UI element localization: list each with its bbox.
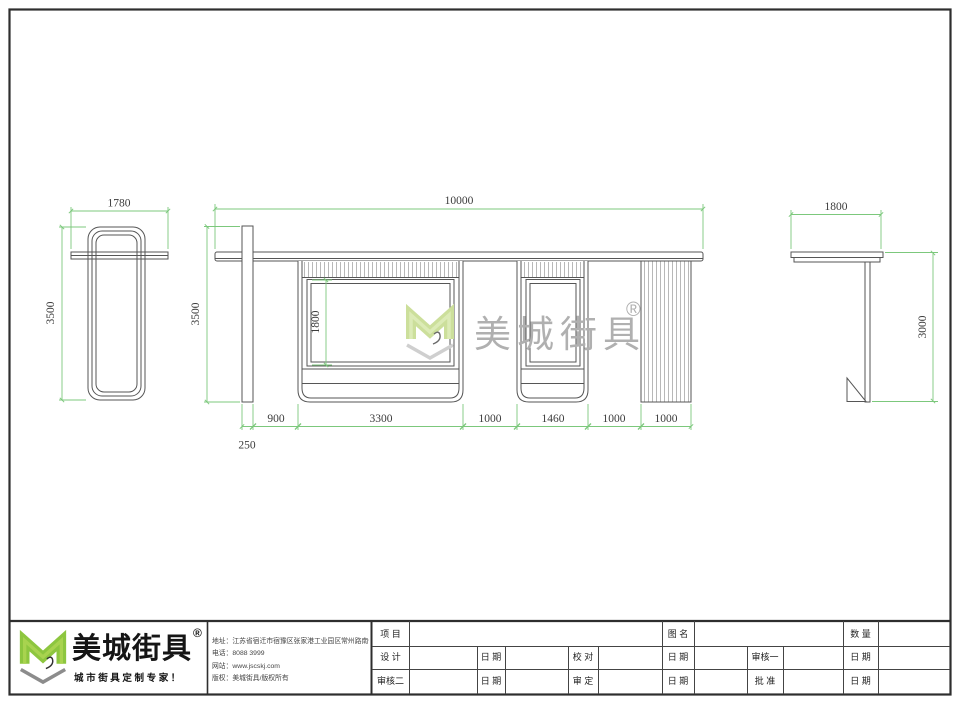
titleblock-label-date-4: 日 期 bbox=[477, 669, 505, 693]
dim-post-width: 250 bbox=[238, 440, 256, 452]
dim-screen-height: 1800 bbox=[310, 310, 322, 333]
cad-drawing-canvas: 美城街具 ® 1780 3500 10000 3500 180 bbox=[0, 0, 960, 704]
large-ad-panel bbox=[298, 261, 463, 402]
dim-front-width: 10000 bbox=[445, 195, 474, 207]
dim-bottom-2: 3300 bbox=[370, 413, 393, 425]
titleblock-label-project: 项 目 bbox=[372, 621, 409, 646]
titleblock-label-date-5: 日 期 bbox=[662, 669, 694, 693]
titleblock-label-approval: 审 定 bbox=[568, 669, 598, 693]
titleblock-label-review-2: 审核二 bbox=[372, 669, 409, 693]
company-logo-icon bbox=[16, 628, 70, 686]
company-website: 网站：www.jscskj.com bbox=[212, 661, 369, 673]
dim-bottom-5: 1000 bbox=[603, 413, 626, 425]
company-brand-name: 美城街具 bbox=[72, 632, 192, 666]
watermark-brand-text: 美城街具 bbox=[474, 314, 646, 355]
titleblock-label-drawing-name: 图 名 bbox=[662, 621, 694, 646]
dim-right-height: 3000 bbox=[917, 315, 929, 338]
company-tagline: 城市街具定制专家！ bbox=[74, 670, 183, 684]
titleblock-label-date-2: 日 期 bbox=[662, 646, 694, 669]
titleblock-label-date-1: 日 期 bbox=[477, 646, 505, 669]
dim-front-height: 3500 bbox=[190, 302, 202, 325]
right-side-view bbox=[791, 252, 883, 402]
titleblock-label-review-1: 审核一 bbox=[747, 646, 783, 669]
registered-trademark-mark: ® bbox=[193, 626, 202, 640]
titleblock-label-date-6: 日 期 bbox=[843, 669, 878, 693]
titleblock-label-approve: 批 准 bbox=[747, 669, 783, 693]
shelter-post bbox=[242, 226, 253, 402]
titleblock-label-proofread: 校 对 bbox=[568, 646, 598, 669]
company-address: 地址：江苏省宿迁市宿豫区张家港工业园区常州路南侧1号 bbox=[212, 636, 369, 648]
titleblock-label-design: 设 计 bbox=[372, 646, 409, 669]
dim-right-width: 1800 bbox=[825, 201, 848, 213]
titleblock-label-quantity: 数 量 bbox=[843, 621, 878, 646]
dim-left-width: 1780 bbox=[108, 198, 131, 210]
dim-bottom-6: 1000 bbox=[655, 413, 678, 425]
dim-bottom-1: 900 bbox=[267, 413, 285, 425]
dim-left-height: 3500 bbox=[45, 301, 57, 324]
watermark-reg-mark: ® bbox=[626, 299, 641, 321]
slatted-column bbox=[641, 261, 691, 402]
left-side-view bbox=[71, 227, 168, 400]
company-contact-info: 地址：江苏省宿迁市宿豫区张家港工业园区常州路南侧1号 电话：8088 3999 … bbox=[212, 636, 369, 686]
company-phone: 电话：8088 3999 bbox=[212, 648, 369, 660]
titleblock-label-date-3: 日 期 bbox=[843, 646, 878, 669]
dim-bottom-4: 1460 bbox=[542, 413, 565, 425]
dim-bottom-3: 1000 bbox=[479, 413, 502, 425]
shelter-roof bbox=[215, 252, 703, 261]
drawing-sheet: 美城街具 ® 1780 3500 10000 3500 180 bbox=[0, 0, 960, 704]
company-copyright: 版权：美城街具/版权所有 bbox=[212, 673, 369, 685]
